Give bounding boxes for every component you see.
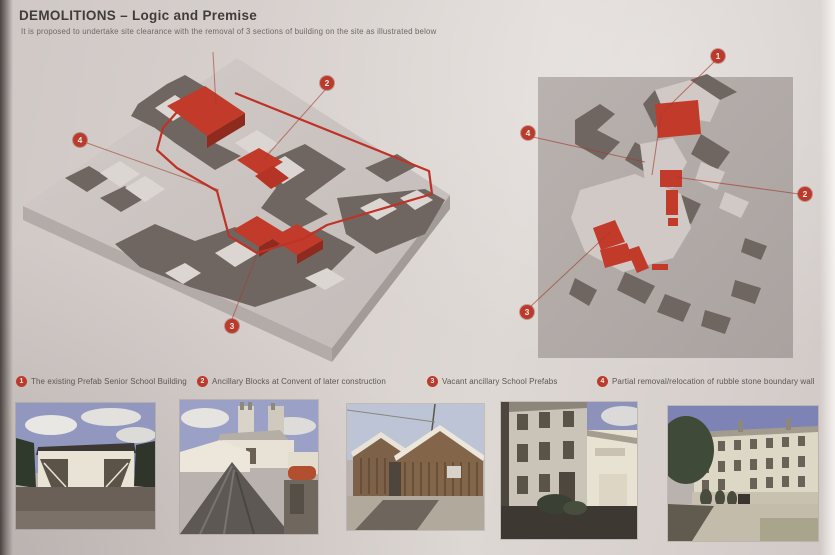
legend-item-3: 3 Vacant ancillary School Prefabs [427, 376, 557, 387]
legend-number: 4 [601, 378, 605, 385]
prefab-senior-school-photo [16, 403, 155, 529]
marker-4-right-model: 4 [521, 126, 535, 140]
convent-boundary-wall-photo [668, 406, 818, 541]
document-page: DEMOLITIONS – Logic and Premise It is pr… [0, 0, 835, 555]
marker-number: 4 [78, 135, 83, 145]
legend-item-1: 1 The existing Prefab Senior School Buil… [16, 376, 187, 387]
convent-ancillary-blocks-photo-image [180, 400, 318, 534]
legend-badge-3: 3 [427, 376, 438, 387]
legend-item-4: 4 Partial removal/relocation of rubble s… [597, 376, 815, 387]
marker-4-left-model: 4 [73, 133, 87, 147]
legend-badge-4: 4 [597, 376, 608, 387]
marker-number: 2 [325, 78, 330, 88]
convent-yard-photo [501, 402, 637, 539]
aerial-site-model [505, 42, 835, 372]
legend-label-1: The existing Prefab Senior School Buildi… [31, 377, 187, 386]
marker-number: 3 [230, 321, 235, 331]
aerial-site-model-drawing [505, 42, 835, 372]
legend-number: 1 [20, 378, 24, 385]
marker-3-left-model: 3 [225, 319, 239, 333]
legend-badge-1: 1 [16, 376, 27, 387]
convent-boundary-wall-photo-image [668, 406, 818, 541]
legend-number: 2 [201, 378, 205, 385]
legend-badge-2: 2 [197, 376, 208, 387]
marker-1-right-model: 1 [711, 49, 725, 63]
prefab-senior-school-photo-image [16, 403, 155, 529]
marker-3-right-model: 3 [520, 305, 534, 319]
school-prefabs-photo-image [347, 404, 484, 530]
page-title: DEMOLITIONS – Logic and Premise [19, 8, 257, 23]
school-prefabs-photo [347, 404, 484, 530]
convent-ancillary-blocks-photo [180, 400, 318, 534]
legend-label-4: Partial removal/relocation of rubble sto… [612, 377, 815, 386]
marker-number: 3 [525, 307, 530, 317]
marker-number: 2 [803, 189, 808, 199]
legend-label-3: Vacant ancillary School Prefabs [442, 377, 557, 386]
page-subtitle: It is proposed to undertake site clearan… [21, 27, 436, 36]
legend-label-2: Ancillary Blocks at Convent of later con… [212, 377, 386, 386]
marker-number: 1 [716, 51, 721, 61]
marker-2-right-model: 2 [798, 187, 812, 201]
legend-number: 3 [431, 378, 435, 385]
marker-number: 4 [526, 128, 531, 138]
marker-2-left-model: 2 [320, 76, 334, 90]
legend-item-2: 2 Ancillary Blocks at Convent of later c… [197, 376, 386, 387]
convent-yard-photo-image [501, 402, 637, 539]
